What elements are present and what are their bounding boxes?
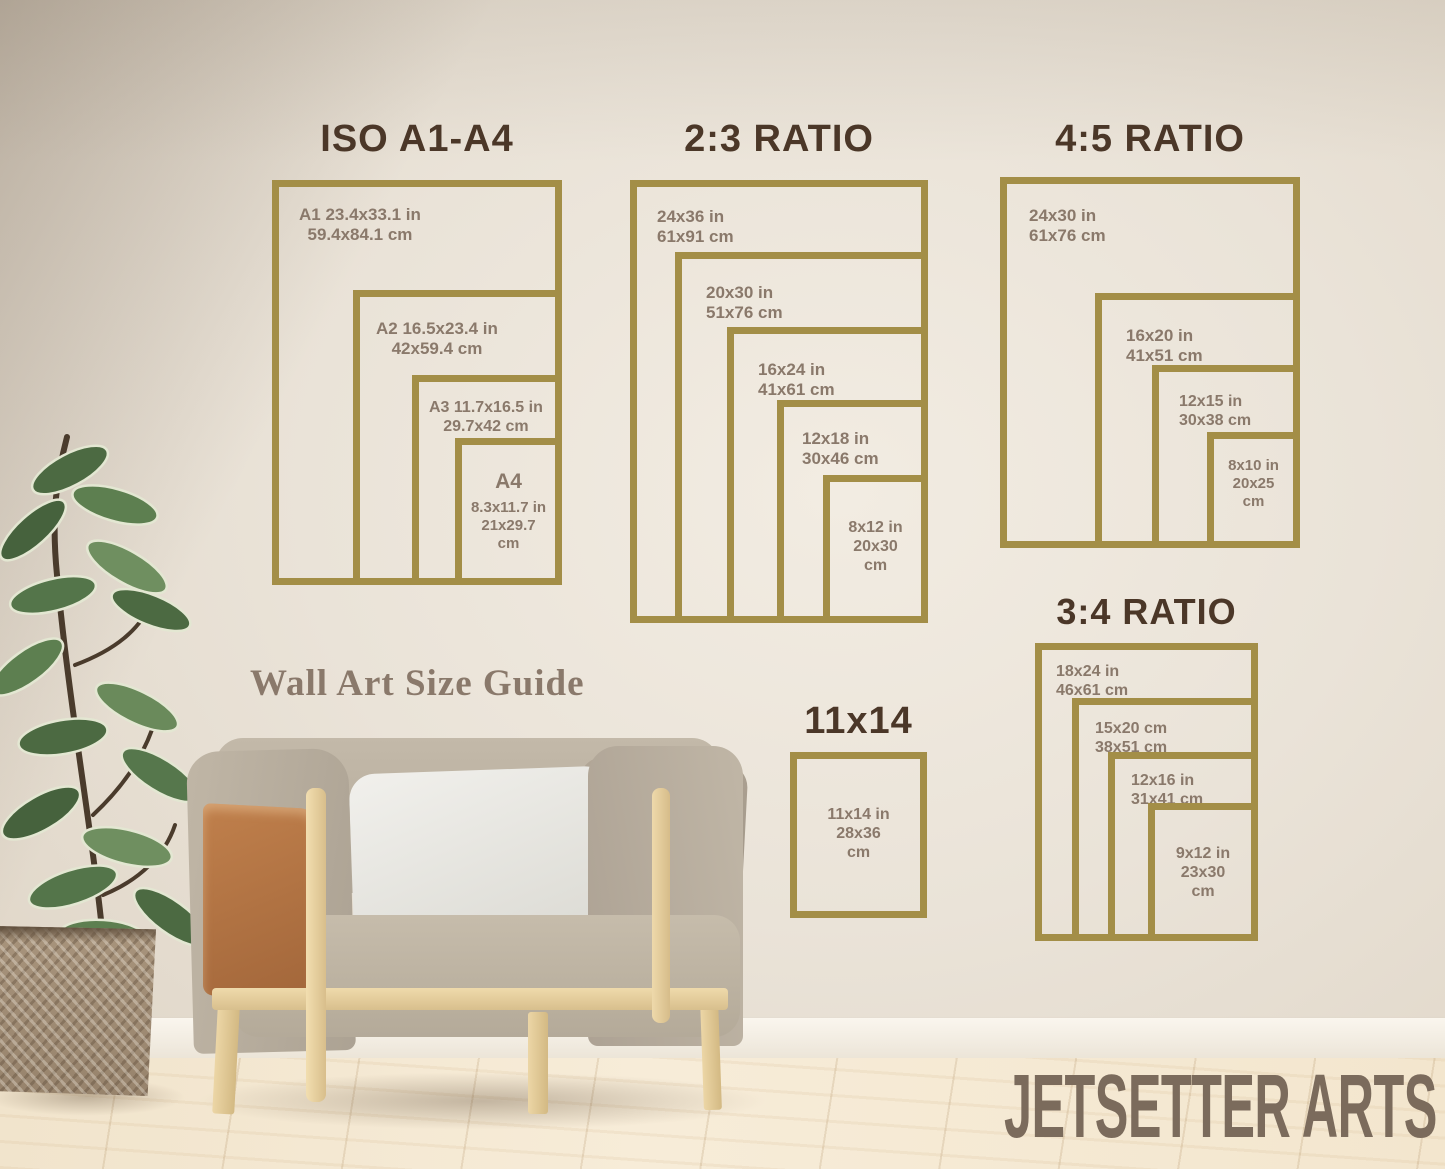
armchair xyxy=(0,0,1445,1169)
chair-wood-post-left xyxy=(306,788,326,1102)
chair-leather-side xyxy=(203,803,313,1001)
chair-leg xyxy=(700,1000,722,1111)
chair-leg xyxy=(528,1012,548,1114)
chair-wood-post-right xyxy=(652,788,670,1023)
chair-front-rail xyxy=(212,988,728,1010)
room-scene: ISO A1-A4 A1 23.4x33.1 in 59.4x84.1 cm A… xyxy=(0,0,1445,1169)
chair-leg xyxy=(212,1005,240,1114)
